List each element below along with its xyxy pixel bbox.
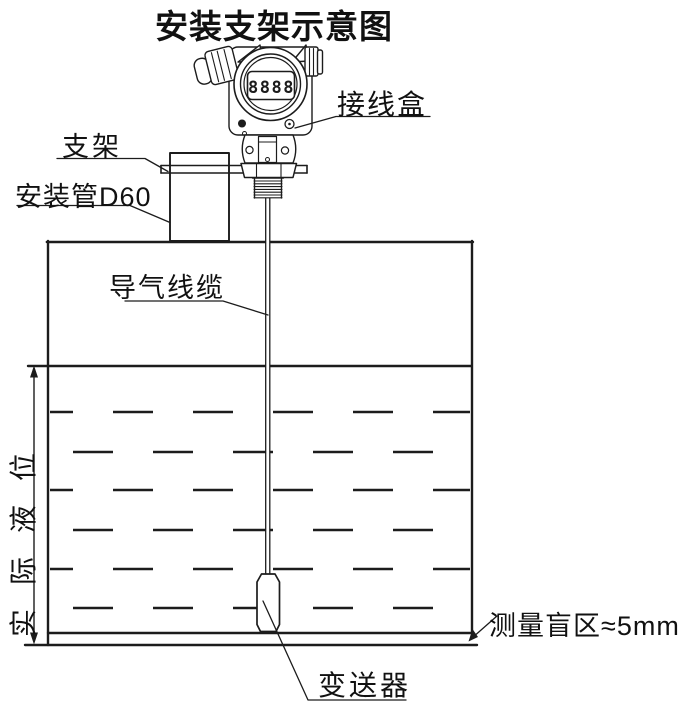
arrow-up-icon bbox=[30, 366, 38, 378]
transmitter-head: 8888 bbox=[192, 45, 323, 198]
tank-outline bbox=[25, 241, 477, 645]
air-guide-cable-shape bbox=[266, 198, 270, 574]
label-bracket: 支架 bbox=[62, 125, 122, 164]
neck-flange bbox=[242, 135, 296, 163]
label-actual-level: 实际液位 bbox=[2, 418, 32, 648]
label-junction-box: 接线盒 bbox=[337, 83, 427, 123]
threaded-stud bbox=[253, 178, 284, 198]
diagram-title: 安装支架示意图 bbox=[155, 0, 393, 48]
label-mounting-pipe: 安装管D60 bbox=[15, 175, 152, 214]
conduit-entry-icon bbox=[305, 47, 323, 76]
hex-nut bbox=[241, 164, 297, 178]
label-air-cable: 导气线缆 bbox=[109, 266, 225, 305]
lcd-display: 8888 bbox=[248, 72, 295, 100]
blind-zone-arrowhead-icon bbox=[469, 629, 479, 642]
probe-shape bbox=[257, 574, 280, 632]
label-transmitter: 变送器 bbox=[318, 664, 411, 704]
installation-diagram: 8888 bbox=[0, 0, 700, 708]
lcd-digits: 8888 bbox=[248, 78, 295, 98]
bolt-icon bbox=[238, 120, 246, 128]
label-blind-zone: 测量盲区≈5mm bbox=[489, 604, 680, 643]
